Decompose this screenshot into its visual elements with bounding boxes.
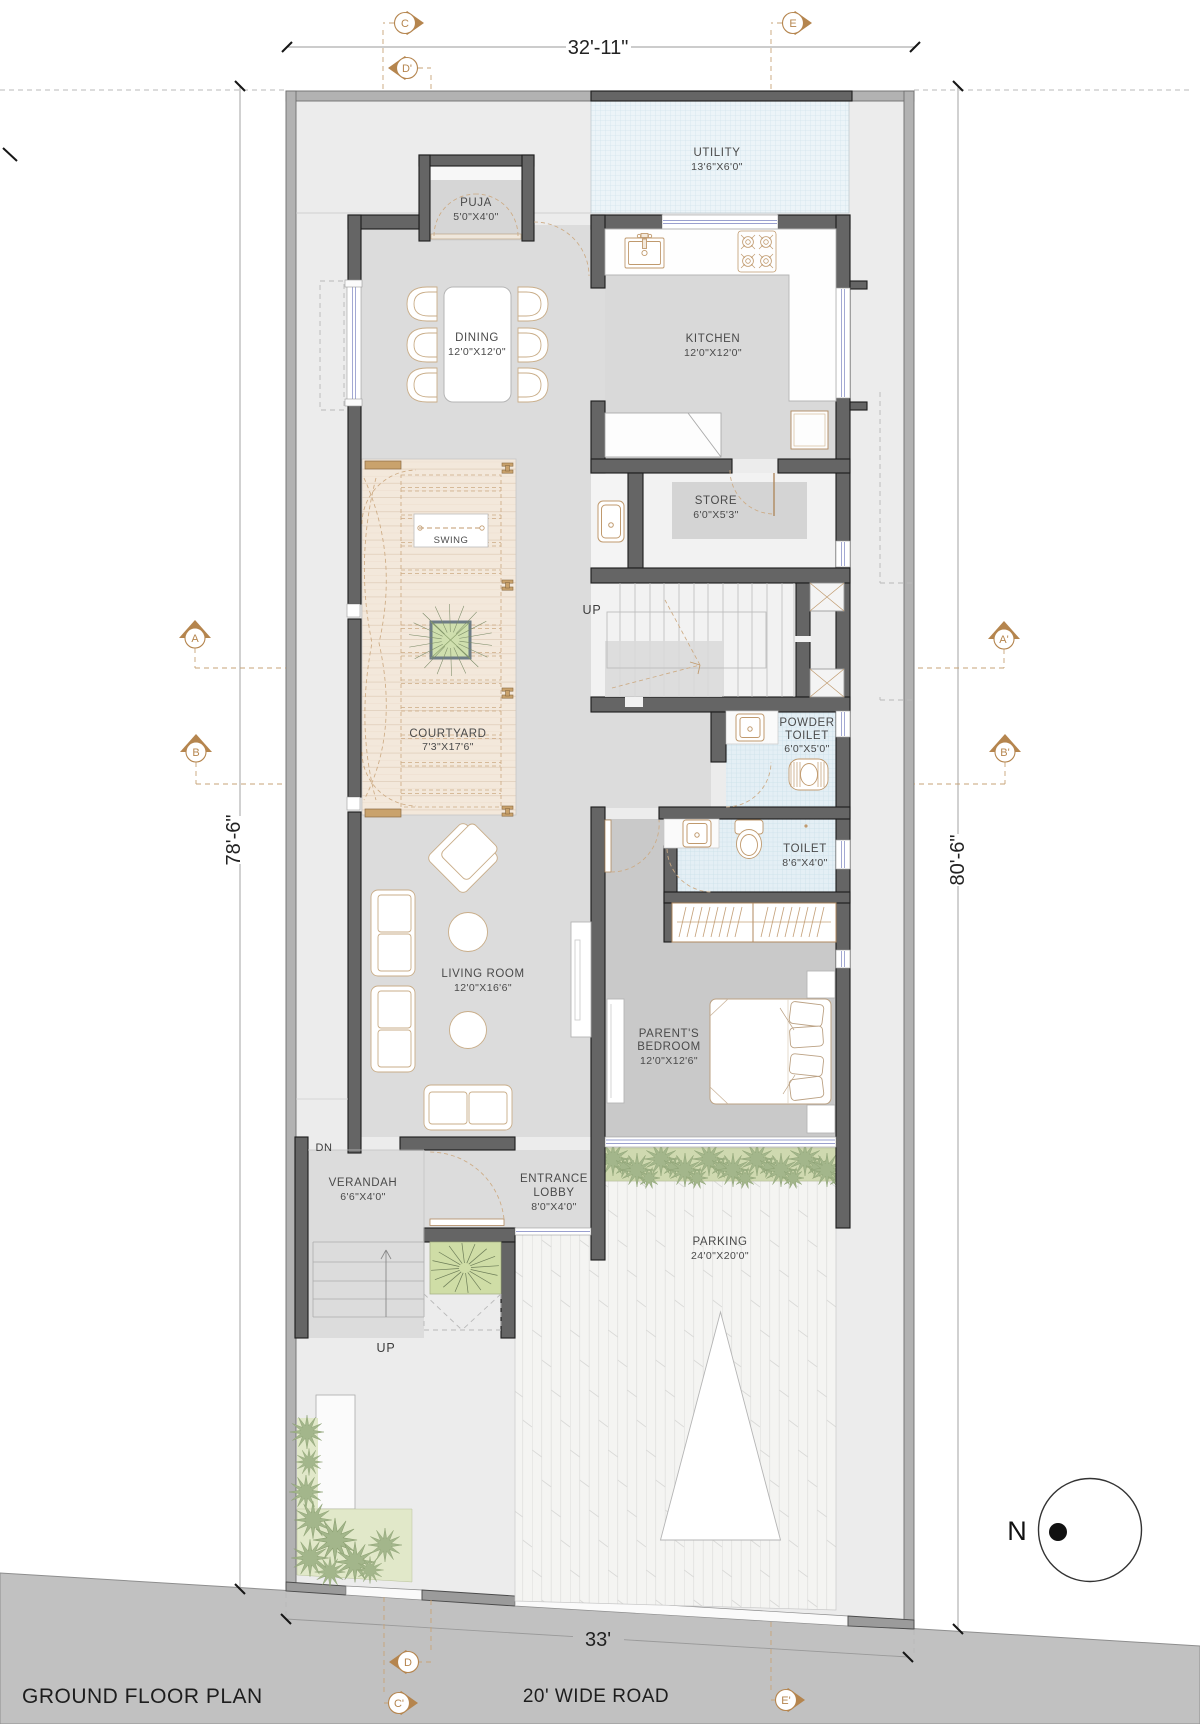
svg-text:33': 33': [585, 1629, 611, 1651]
svg-text:UP: UP: [583, 603, 602, 617]
svg-text:7'3"X17'6": 7'3"X17'6": [422, 741, 474, 753]
svg-text:24'0"X20'0": 24'0"X20'0": [691, 1250, 749, 1262]
svg-text:PARKING: PARKING: [692, 1236, 747, 1248]
svg-text:UP: UP: [377, 1341, 396, 1355]
svg-text:C: C: [401, 18, 409, 30]
svg-text:KITCHEN: KITCHEN: [686, 333, 741, 345]
svg-text:SWING: SWING: [434, 535, 469, 546]
svg-text:A: A: [191, 633, 199, 645]
svg-text:6'0"X5'0": 6'0"X5'0": [784, 743, 829, 755]
svg-text:C': C': [394, 1698, 404, 1710]
svg-text:D: D: [404, 1657, 412, 1669]
svg-text:6'0"X5'3": 6'0"X5'3": [693, 509, 738, 521]
svg-text:13'6"X6'0": 13'6"X6'0": [691, 161, 743, 173]
svg-text:PUJA: PUJA: [460, 197, 492, 209]
svg-text:STORE: STORE: [695, 495, 737, 507]
svg-text:8'0"X4'0": 8'0"X4'0": [531, 1201, 576, 1213]
svg-text:A': A': [999, 634, 1008, 646]
svg-text:ENTRANCE: ENTRANCE: [520, 1173, 588, 1185]
svg-text:UTILITY: UTILITY: [693, 147, 740, 159]
svg-text:DINING: DINING: [455, 332, 499, 344]
svg-text:PARENT'S: PARENT'S: [639, 1028, 699, 1040]
svg-text:E': E': [781, 1695, 790, 1707]
svg-text:5'0"X4'0": 5'0"X4'0": [453, 211, 498, 223]
svg-text:12'0"X16'6": 12'0"X16'6": [454, 982, 512, 994]
svg-text:E: E: [789, 18, 796, 30]
svg-text:20' WIDE ROAD: 20' WIDE ROAD: [523, 1686, 669, 1707]
svg-text:32'-11": 32'-11": [568, 37, 629, 59]
svg-text:8'6"X4'0": 8'6"X4'0": [782, 857, 827, 869]
svg-text:COURTYARD: COURTYARD: [409, 728, 486, 740]
svg-text:LOBBY: LOBBY: [533, 1187, 574, 1199]
svg-text:N: N: [1007, 1516, 1027, 1546]
svg-text:B': B': [1000, 747, 1009, 759]
svg-text:LIVING ROOM: LIVING ROOM: [441, 968, 524, 980]
svg-text:78'-6": 78'-6": [223, 815, 245, 866]
svg-text:BEDROOM: BEDROOM: [637, 1041, 701, 1053]
svg-text:GROUND FLOOR PLAN: GROUND FLOOR PLAN: [22, 1685, 263, 1708]
svg-text:POWDER: POWDER: [779, 717, 834, 729]
svg-text:DN: DN: [315, 1142, 332, 1154]
svg-text:6'6"X4'0": 6'6"X4'0": [340, 1191, 385, 1203]
svg-text:D': D': [402, 63, 412, 75]
svg-text:12'0"X12'0": 12'0"X12'0": [684, 347, 742, 359]
svg-text:VERANDAH: VERANDAH: [329, 1177, 398, 1189]
svg-text:12'0"X12'0": 12'0"X12'0": [448, 346, 506, 358]
svg-text:12'0"X12'6": 12'0"X12'6": [640, 1055, 698, 1067]
svg-text:TOILET: TOILET: [785, 730, 829, 742]
svg-text:80'-6": 80'-6": [947, 835, 969, 886]
svg-text:B: B: [192, 747, 199, 759]
svg-text:TOILET: TOILET: [783, 843, 827, 855]
